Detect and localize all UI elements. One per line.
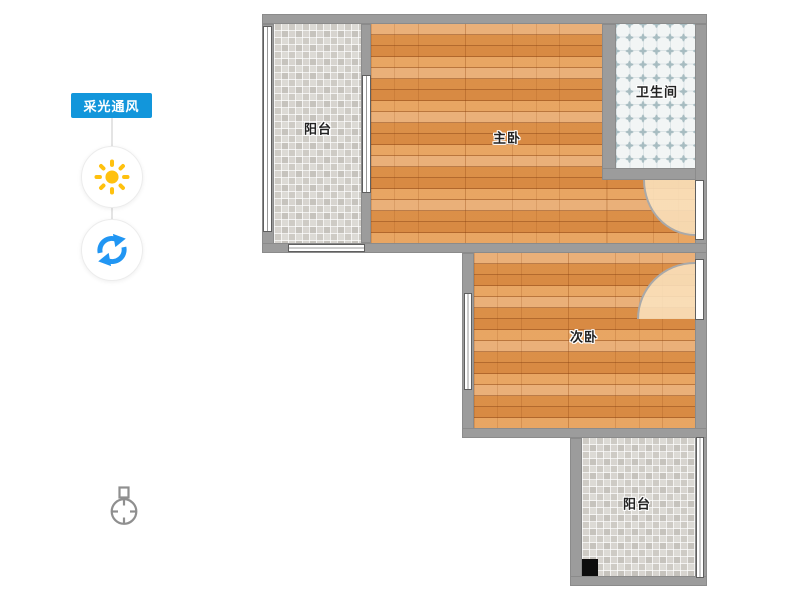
floorplan-canvas: 采光通风 [0, 0, 800, 600]
window-balcony-bottom-right [696, 437, 704, 578]
window-balcony-left [263, 26, 272, 232]
door-second-bedroom [695, 259, 704, 320]
room-label-balcony-bottom: 阳台 [623, 494, 651, 513]
wall-balcony-bottom-bottom [570, 576, 707, 586]
wall-bathroom-bottom [602, 168, 707, 180]
room-label-bathroom: 卫生间 [636, 82, 678, 101]
wall-balcony-bottom-left [570, 438, 582, 586]
room-label-balcony-top: 阳台 [304, 119, 332, 138]
window-balcony-to-master [362, 75, 371, 193]
floorplan: 阳台 主卧 卫生间 次卧 阳台 [0, 0, 800, 600]
room-label-second-bedroom: 次卧 [570, 327, 598, 346]
wall-second-bedroom-bottom [462, 428, 707, 438]
room-label-master-bedroom: 主卧 [493, 128, 521, 147]
window-balcony-bottom [288, 244, 365, 252]
wall-top [262, 14, 707, 24]
window-second-bedroom-left [464, 293, 472, 390]
floor-drain-block [582, 559, 598, 576]
wall-bathroom-left [602, 24, 616, 180]
door-master-bedroom [695, 180, 704, 240]
